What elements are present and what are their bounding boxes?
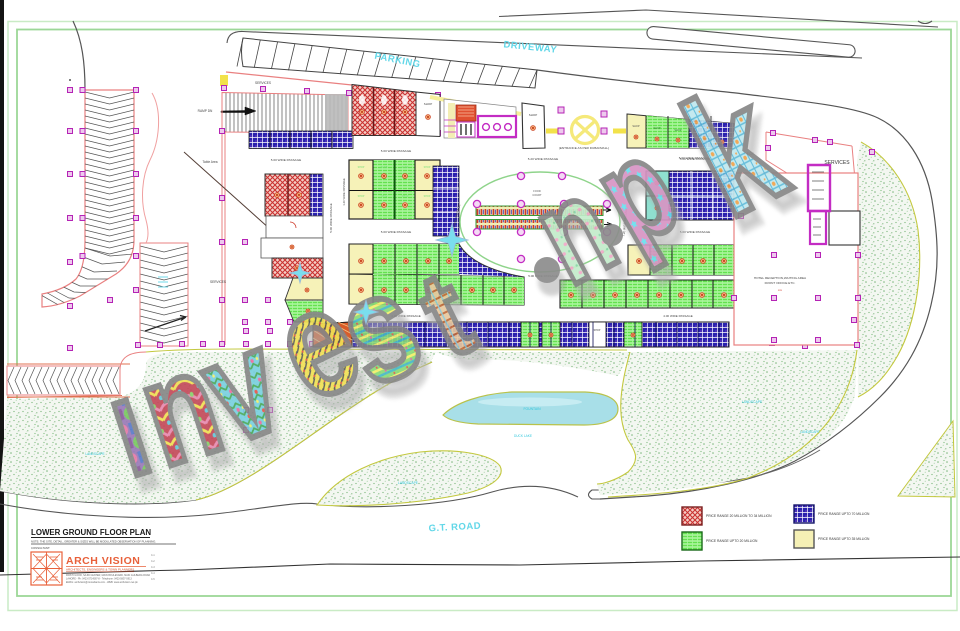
svg-text:PRICE RANGE UPTO 70 MILLION: PRICE RANGE UPTO 70 MILLION bbox=[818, 512, 870, 516]
svg-text:SHOP: SHOP bbox=[358, 166, 365, 169]
svg-text:SHOP: SHOP bbox=[653, 126, 661, 130]
svg-text:PRICE RANGE UPTO 20 MILLION: PRICE RANGE UPTO 20 MILLION bbox=[706, 539, 758, 543]
svg-text:SHOP: SHOP bbox=[358, 195, 365, 198]
svg-text:SHOP: SHOP bbox=[424, 195, 431, 198]
svg-text:RAMP DN: RAMP DN bbox=[198, 109, 213, 113]
svg-text:ARCHITECTS, ENGINEERS & TOWN P: ARCHITECTS, ENGINEERS & TOWN PLANNERS bbox=[66, 568, 134, 572]
svg-text:SERVICES: SERVICES bbox=[255, 81, 271, 85]
svg-text:NOTE: THE SITE, DETAIL, GREATE: NOTE: THE SITE, DETAIL, GREATER & SIZES … bbox=[31, 540, 156, 544]
svg-text:ARCH VISION: ARCH VISION bbox=[66, 555, 140, 567]
svg-text:SHOP: SHOP bbox=[381, 166, 388, 169]
svg-text:SERVICES: SERVICES bbox=[824, 160, 850, 166]
svg-text:4.00 WIDE PASSAGE: 4.00 WIDE PASSAGE bbox=[663, 314, 692, 318]
svg-text:HOTEL RECEPTION,WAITING AREA: HOTEL RECEPTION,WAITING AREA bbox=[754, 276, 807, 280]
svg-text:5.00 WIDE PASSAGE: 5.00 WIDE PASSAGE bbox=[329, 203, 333, 232]
svg-text:PRICE RANGE 20 MILLION TO 34 M: PRICE RANGE 20 MILLION TO 34 MILLION bbox=[706, 514, 772, 518]
svg-text:FOUNTAIN: FOUNTAIN bbox=[523, 407, 541, 411]
svg-text:1.20 WIDE PASSAGE: 1.20 WIDE PASSAGE bbox=[342, 178, 346, 206]
svg-text:LANDSCAPE: LANDSCAPE bbox=[742, 400, 763, 404]
svg-text:Table Area: Table Area bbox=[202, 160, 217, 164]
svg-text:5.00 WIDE PASSAGE: 5.00 WIDE PASSAGE bbox=[381, 149, 411, 153]
svg-text:LANDSCAPE: LANDSCAPE bbox=[85, 452, 104, 456]
svg-text:SHOP: SHOP bbox=[674, 128, 682, 132]
svg-text:SHOP: SHOP bbox=[424, 166, 431, 169]
svg-text:EMAIL: archvision@consultants.: EMAIL: archvision@consultants.com - WEB:… bbox=[66, 581, 138, 584]
svg-text:SHOP: SHOP bbox=[424, 102, 433, 106]
svg-text:SHOP: SHOP bbox=[381, 195, 388, 198]
svg-text:SERVICES: SERVICES bbox=[210, 280, 226, 284]
svg-text:PRICE RANGE UPTO 35 MILLION: PRICE RANGE UPTO 35 MILLION bbox=[818, 537, 870, 541]
svg-text:SHOP: SHOP bbox=[402, 195, 409, 198]
svg-text:5.00 WIDE PASSAGE: 5.00 WIDE PASSAGE bbox=[381, 230, 411, 234]
svg-text:SHOP: SHOP bbox=[594, 329, 601, 332]
svg-text:5.00 WIDE PASSAGE: 5.00 WIDE PASSAGE bbox=[271, 158, 301, 162]
svg-text:SHOP: SHOP bbox=[529, 113, 538, 117]
svg-text:SHOP: SHOP bbox=[402, 166, 409, 169]
svg-text:FRONT OFFICE ETC.: FRONT OFFICE ETC. bbox=[765, 281, 796, 285]
svg-text:LANDSCAPE: LANDSCAPE bbox=[398, 481, 419, 485]
svg-text:CONSULTANT:: CONSULTANT: bbox=[31, 546, 50, 550]
svg-text:LANDSCAPE: LANDSCAPE bbox=[800, 430, 819, 434]
svg-text:LOWER GROUND FLOOR PLAN: LOWER GROUND FLOOR PLAN bbox=[31, 528, 151, 537]
svg-text:DUCK LAKE: DUCK LAKE bbox=[514, 434, 532, 438]
